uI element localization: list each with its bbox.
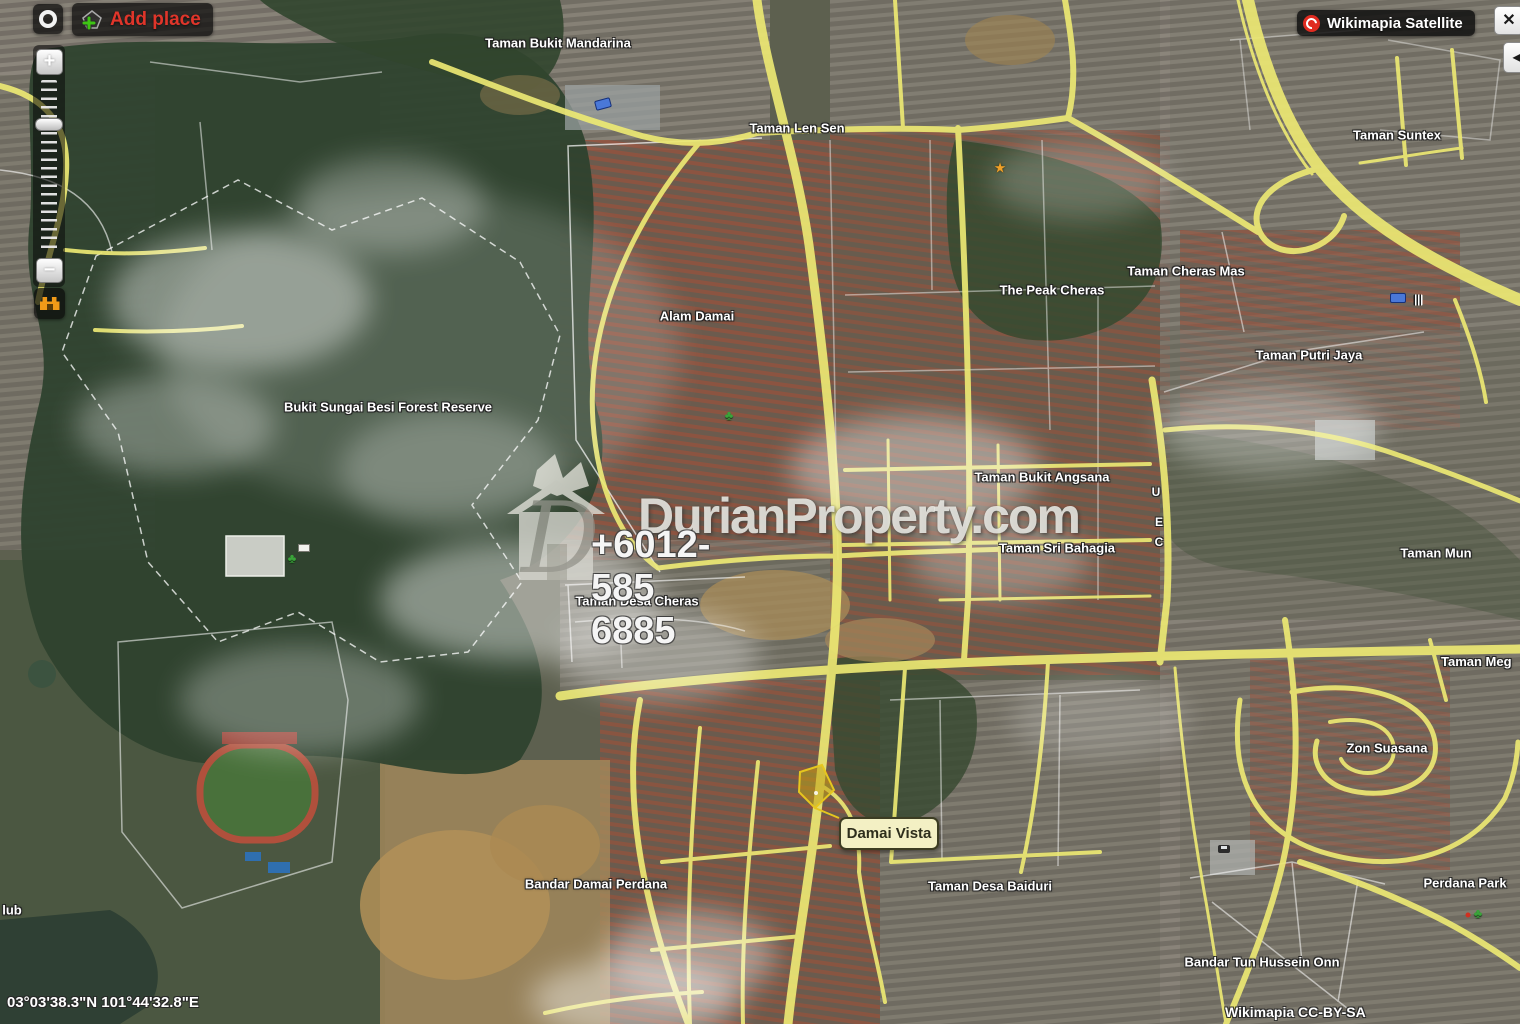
place-tooltip[interactable]: Damai Vista [839, 817, 939, 850]
satellite-imagery-layer [0, 0, 1520, 1024]
map-canvas[interactable]: Taman Bukit Mandarina Taman Len Sen Tama… [0, 0, 1520, 1024]
place-label-the-peak-cheras[interactable]: The Peak Cheras [1000, 283, 1105, 298]
close-button[interactable]: ✕ [1494, 6, 1520, 35]
car-poi-icon[interactable] [1218, 845, 1230, 853]
place-label-taman-bukit-mandarina[interactable]: Taman Bukit Mandarina [485, 36, 631, 51]
place-label-bandar-damai-perdana[interactable]: Bandar Damai Perdana [525, 877, 667, 892]
car-poi-icon[interactable] [1390, 293, 1406, 303]
place-label-taman-bukit-angsana[interactable]: Taman Bukit Angsana [974, 470, 1109, 485]
collapse-panel-button[interactable]: ◀ [1503, 42, 1520, 73]
place-label-zon-suasana[interactable]: Zon Suasana [1347, 741, 1428, 756]
zoom-out-button[interactable]: − [36, 258, 63, 283]
add-place-label: Add place [110, 9, 201, 31]
attribution-text: Wikimapia CC-BY-SA [1225, 1004, 1366, 1020]
place-label-taman-cheras-mas[interactable]: Taman Cheras Mas [1127, 264, 1245, 279]
map-type-label: Wikimapia Satellite [1327, 15, 1463, 32]
place-label-alam-damai[interactable]: Alam Damai [660, 309, 734, 324]
place-label-taman-desa-baiduri[interactable]: Taman Desa Baiduri [928, 879, 1052, 894]
place-label-taman-sri-bahagia[interactable]: Taman Sri Bahagia [999, 541, 1115, 556]
panorama-layer-button[interactable] [34, 288, 65, 319]
zoom-slider-handle[interactable] [35, 118, 63, 131]
place-label-taman-suntex[interactable]: Taman Suntex [1353, 128, 1441, 143]
zoom-in-button[interactable]: + [36, 49, 63, 75]
place-label-taman-mun[interactable]: Taman Mun [1400, 546, 1471, 561]
add-place-pentagon-icon [80, 8, 104, 32]
place-label-taman-len-sen[interactable]: Taman Len Sen [749, 121, 844, 136]
fuel-station-poi-icon[interactable] [1414, 295, 1423, 306]
road-letter-u: U [1152, 485, 1161, 499]
place-label-taman-meg[interactable]: Taman Meg [1441, 654, 1512, 669]
cursor-coordinates: 03°03'38.3"N 101°44'32.8"E [7, 994, 199, 1011]
zoom-slider-track[interactable] [41, 80, 57, 254]
map-type-selector[interactable]: Wikimapia Satellite [1297, 10, 1475, 36]
castle-icon [40, 297, 60, 310]
eye-icon [39, 10, 57, 28]
place-label-bukit-sungai-besi-forest-reserve[interactable]: Bukit Sungai Besi Forest Reserve [284, 400, 492, 415]
tree-poi-icon[interactable]: ♣ [288, 551, 297, 566]
tree-poi-icon[interactable]: ♣ [725, 408, 734, 423]
sign-poi-icon[interactable] [298, 544, 310, 552]
place-label-club-fragment[interactable]: lub [2, 903, 22, 918]
place-label-taman-putri-jaya[interactable]: Taman Putri Jaya [1256, 348, 1363, 363]
add-place-button[interactable]: Add place [72, 3, 213, 36]
red-marker-poi-icon[interactable] [1466, 913, 1471, 918]
locate-eye-button[interactable] [33, 4, 63, 34]
place-label-perdana-park[interactable]: Perdana Park [1423, 876, 1506, 891]
place-label-taman-desa-cheras[interactable]: Taman Desa Cheras [575, 594, 698, 609]
place-label-bandar-tun-hussein-onn[interactable]: Bandar Tun Hussein Onn [1184, 955, 1339, 970]
road-letter-c: C [1155, 535, 1164, 549]
wikimapia-logo-icon [1303, 15, 1320, 32]
star-poi-icon[interactable]: ★ [994, 160, 1007, 177]
road-letter-e: E [1155, 515, 1163, 529]
tree-poi-icon[interactable]: ♣ [1474, 906, 1483, 921]
